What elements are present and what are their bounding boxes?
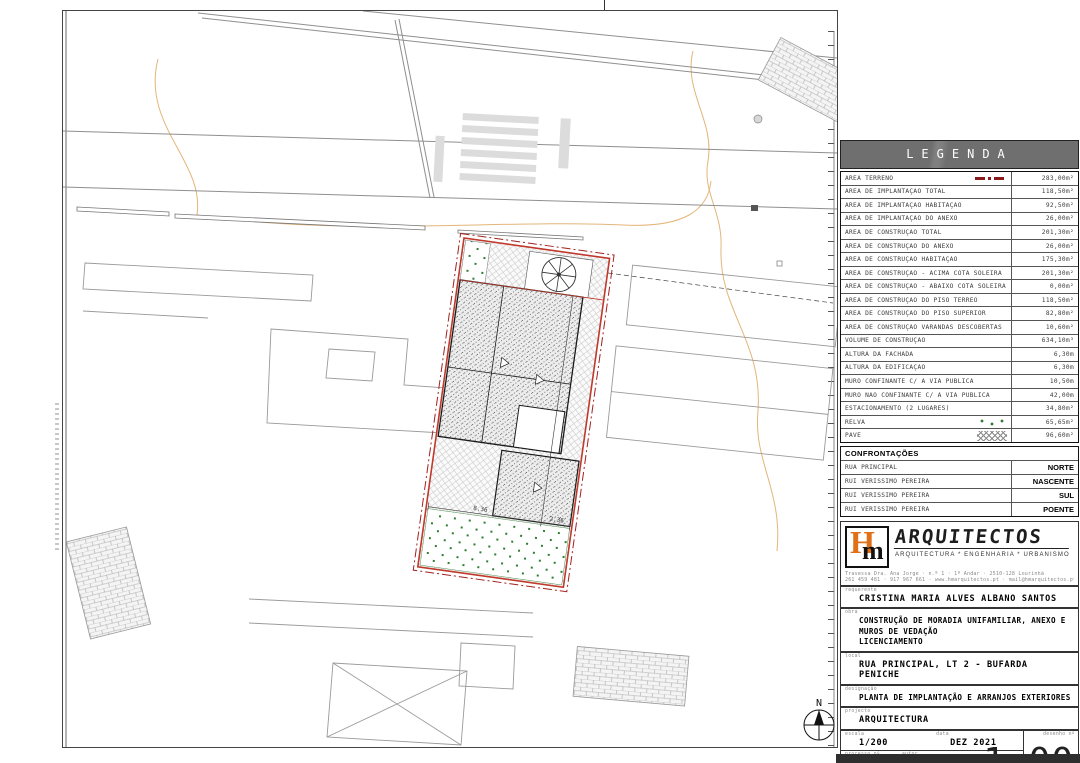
legend-row-value: 634,10m³	[1011, 335, 1078, 348]
legend-row-label: ÁREA DE CONSTRUÇÃO HABITAÇÃO	[841, 256, 1011, 263]
drawing-sheet: 8.36 2.36 N LEGENDA ÁREA TERRENO 283,00m…	[0, 0, 1080, 763]
legend-row: ESTACIONAMENTO (2 LUGARES)34,80m²	[841, 402, 1078, 416]
utility-symbols	[751, 115, 782, 266]
site-plan: 8.36 2.36 N	[63, 11, 837, 747]
legend-row-label: ÁREA DE CONSTRUÇÃO DO ANEXO	[841, 243, 1011, 250]
legend-row-label: ESTACIONAMENTO (2 LUGARES)	[841, 405, 1011, 412]
fold-mark	[604, 0, 605, 10]
drawing-title: PLANTA DE IMPLANTAÇÃO E ARRANJOS EXTERIO…	[845, 693, 1074, 704]
terrain-line-symbol	[975, 177, 1007, 180]
legend-row: ÁREA DE CONSTRUÇÃO VARANDAS DESCOBERTAS1…	[841, 321, 1078, 335]
confrontacao-value: NASCENTE	[1011, 475, 1078, 488]
client-name: CRISTINA MARIA ALVES ALBANO SANTOS	[845, 594, 1074, 605]
field-projecto: projecto ARQUITECTURA	[841, 708, 1078, 731]
legend-row-value: 34,80m²	[1011, 402, 1078, 415]
legend-row: ÁREA DE IMPLANTAÇÃO TOTAL118,50m²	[841, 186, 1078, 200]
legend-row-label: ÁREA DE CONSTRUÇÃO DO PISO TÉRREO	[841, 297, 1011, 304]
legend-row-value: 201,30m²	[1011, 226, 1078, 239]
legend-row: ÁREA DE IMPLANTAÇÃO HABITAÇÃO92,50m²	[841, 199, 1078, 213]
legend-row: ÁREA DE CONSTRUÇÃO HABITAÇÃO175,30m²	[841, 253, 1078, 267]
legend-row-value: 26,00m²	[1011, 240, 1078, 253]
hm-logo-icon: H m	[845, 526, 889, 568]
legend-title: LEGENDA	[840, 140, 1079, 169]
logo-letter-m: m	[862, 536, 884, 566]
project-description: LICENCIAMENTO	[845, 637, 1074, 648]
project-description: MUROS DE VEDAÇÃO	[845, 627, 1074, 638]
address-line: 261 459 481 · 917 967 661 · www.hmarquit…	[845, 577, 1074, 583]
legend-row: ÁREA DE IMPLANTAÇÃO DO ANEXO26,00m²	[841, 213, 1078, 227]
legend-row-value: 283,00m²	[1011, 172, 1078, 185]
site-address: RUA PRINCIPAL, LT 2 - BUFARDA	[845, 660, 1074, 671]
field-label: desenho nº	[1043, 732, 1075, 738]
legend-row-label: ÁREA DE CONSTRUÇÃO TOTAL	[841, 229, 1011, 236]
confrontacao-value: NORTE	[1011, 461, 1078, 474]
legend-row: ÁREA DE CONSTRUÇÃO - ACIMA COTA SOLEIRA2…	[841, 267, 1078, 281]
neighbor-buildings-right	[606, 264, 837, 460]
legend-row: VOLUME DE CONSTRUÇÃO634,10m³	[841, 335, 1078, 349]
legend-row: ÁREA DE CONSTRUÇÃO DO ANEXO26,00m²	[841, 240, 1078, 254]
legend-panel: LEGENDA ÁREA TERRENO 283,00m² ÁREA DE IM…	[840, 140, 1079, 763]
title-block: H m ARQUITECTOS ARQUITECTURA * ENGENHARI…	[840, 521, 1079, 763]
legend-row: PAVÊ 96,60m²	[841, 429, 1078, 442]
legend-row-value: 92,50m²	[1011, 199, 1078, 212]
legend-row-value: 6,30m	[1011, 348, 1078, 361]
legend-row: MURO NÃO CONFINANTE C/ A VIA PÚBLICA42,0…	[841, 389, 1078, 403]
north-arrow: N	[804, 698, 834, 740]
confrontacao-row: RUA PRINCIPALNORTE	[841, 461, 1078, 475]
legend-row: MURO CONFINANTE C/ A VIA PÚBLICA10,50m	[841, 375, 1078, 389]
legend-row: ALTURA DA EDIFICAÇÃO6,30m	[841, 362, 1078, 376]
legend-row-value: 175,30m²	[1011, 253, 1078, 266]
legend-row: ÁREA DE CONSTRUÇÃO DO PISO SUPERIOR82,80…	[841, 307, 1078, 321]
drawing-frame: 8.36 2.36 N	[62, 10, 838, 748]
field-designacao: designação PLANTA DE IMPLANTAÇÃO E ARRAN…	[841, 686, 1078, 709]
patio	[513, 405, 564, 453]
discipline: ARQUITECTURA	[845, 715, 1074, 726]
legend-row: ÁREA DE CONSTRUÇÃO - ABAIXO COTA SOLEIRA…	[841, 280, 1078, 294]
legend-row-label: VOLUME DE CONSTRUÇÃO	[841, 337, 1011, 344]
legend-row-value: 6,30m	[1011, 362, 1078, 375]
confrontacoes-title: CONFRONTAÇÕES	[841, 447, 1078, 461]
annex-footprint	[493, 450, 579, 526]
north-label: N	[816, 698, 822, 709]
legend-row: ÁREA TERRENO 283,00m²	[841, 172, 1078, 186]
confrontacao-row: RUI VERISSIMO PEREIRAPOENTE	[841, 503, 1078, 516]
confrontacao-label: RUI VERISSIMO PEREIRA	[841, 478, 1011, 485]
bottom-dark-band	[836, 754, 1080, 763]
confrontacao-label: RUI VERISSIMO PEREIRA	[841, 506, 1011, 513]
scale-value: 1/200	[845, 738, 928, 749]
legend-row-value: 10,50m	[1011, 375, 1078, 388]
confrontacao-value: POENTE	[1011, 503, 1078, 516]
legend-row: ÁREA DE CONSTRUÇÃO TOTAL201,30m²	[841, 226, 1078, 240]
field-obra: obra CONSTRUÇÃO DE MORADIA UNIFAMILIAR, …	[841, 609, 1078, 653]
legend-row-label: ÁREA DE CONSTRUÇÃO - ACIMA COTA SOLEIRA	[841, 270, 1011, 277]
neighbor-buildings-left	[83, 263, 447, 433]
legend-row-label: ÁREA TERRENO	[841, 175, 975, 182]
confrontacao-label: RUA PRINCIPAL	[841, 464, 1011, 471]
firm-name: ARQUITECTOS	[894, 526, 1071, 549]
legend-row-value: 65,65m²	[1011, 416, 1078, 429]
legend-row-label: PAVÊ	[841, 432, 977, 439]
crosswalk	[433, 112, 570, 189]
legend-row-label: ÁREA DE CONSTRUÇÃO VARANDAS DESCOBERTAS	[841, 324, 1011, 331]
legend-row-value: 26,00m²	[1011, 213, 1078, 226]
legend-row-value: 42,00m	[1011, 389, 1078, 402]
legend-row-label: ÁREA DE IMPLANTAÇÃO TOTAL	[841, 188, 1011, 195]
confrontacao-row: RUI VERISSIMO PEREIRASUL	[841, 489, 1078, 503]
field-local: local RUA PRINCIPAL, LT 2 - BUFARDA PENI…	[841, 653, 1078, 686]
legend-table: ÁREA TERRENO 283,00m² ÁREA DE IMPLANTAÇÃ…	[840, 171, 1079, 443]
legend-row: RELVA 65,65m²	[841, 416, 1078, 430]
legend-row-value: 201,30m²	[1011, 267, 1078, 280]
legend-row-value: 118,50m²	[1011, 294, 1078, 307]
margin-file-path-text	[55, 400, 59, 550]
firm-tagline: ARQUITECTURA * ENGENHARIA * URBANISMO	[895, 552, 1070, 558]
pave-hatch-symbol	[977, 431, 1007, 441]
firm-logo: H m ARQUITECTOS ARQUITECTURA * ENGENHARI…	[841, 522, 1078, 570]
frame-ruler-ticks	[831, 31, 834, 747]
legend-row: ÁREA DE CONSTRUÇÃO DO PISO TÉRREO118,50m…	[841, 294, 1078, 308]
grass-dots-symbol	[977, 418, 1007, 427]
legend-row-label: ÁREA DE CONSTRUÇÃO - ABAIXO COTA SOLEIRA	[841, 283, 1011, 290]
legend-row-value: 10,60m²	[1011, 321, 1078, 334]
field-requerente: requerente CRISTINA MARIA ALVES ALBANO S…	[841, 587, 1078, 610]
sidewalk-walls	[77, 207, 583, 240]
confrontacao-value: SUL	[1011, 489, 1078, 502]
legend-row-label: ÁREA DE IMPLANTAÇÃO HABITAÇÃO	[841, 202, 1011, 209]
road-lines	[63, 11, 837, 209]
survey-dashed-line	[608, 273, 833, 303]
confrontacoes-table: CONFRONTAÇÕES RUA PRINCIPALNORTE RUI VER…	[840, 446, 1079, 517]
legend-row-label: ALTURA DA FACHADA	[841, 351, 1011, 358]
legend-row-label: RELVA	[841, 419, 977, 426]
firm-address: Travessa Dra. Ana Jorge · n.º 1 · 1º And…	[841, 570, 1078, 587]
legend-row-label: MURO CONFINANTE C/ A VIA PÚBLICA	[841, 378, 1011, 385]
project-description: CONSTRUÇÃO DE MORADIA UNIFAMILIAR, ANEXO…	[845, 616, 1074, 627]
legend-row-value: 96,60m²	[1011, 429, 1078, 442]
bottom-structures	[249, 599, 533, 745]
confrontacao-label: RUI VERISSIMO PEREIRA	[841, 492, 1011, 499]
legend-row-value: 118,50m²	[1011, 186, 1078, 199]
legend-row-value: 0,00m²	[1011, 280, 1078, 293]
legend-row-value: 82,80m²	[1011, 307, 1078, 320]
site-address: PENICHE	[845, 670, 1074, 681]
legend-row-label: ÁREA DE CONSTRUÇÃO DO PISO SUPERIOR	[841, 310, 1011, 317]
confrontacao-row: RUI VERISSIMO PEREIRANASCENTE	[841, 475, 1078, 489]
subject-plot: 8.36 2.36	[413, 233, 614, 591]
legend-row-label: MURO NÃO CONFINANTE C/ A VIA PÚBLICA	[841, 392, 1011, 399]
legend-row-label: ÁREA DE IMPLANTAÇÃO DO ANEXO	[841, 215, 1011, 222]
legend-row-label: ALTURA DA EDIFICAÇÃO	[841, 364, 1011, 371]
legend-row: ALTURA DA FACHADA6,30m	[841, 348, 1078, 362]
